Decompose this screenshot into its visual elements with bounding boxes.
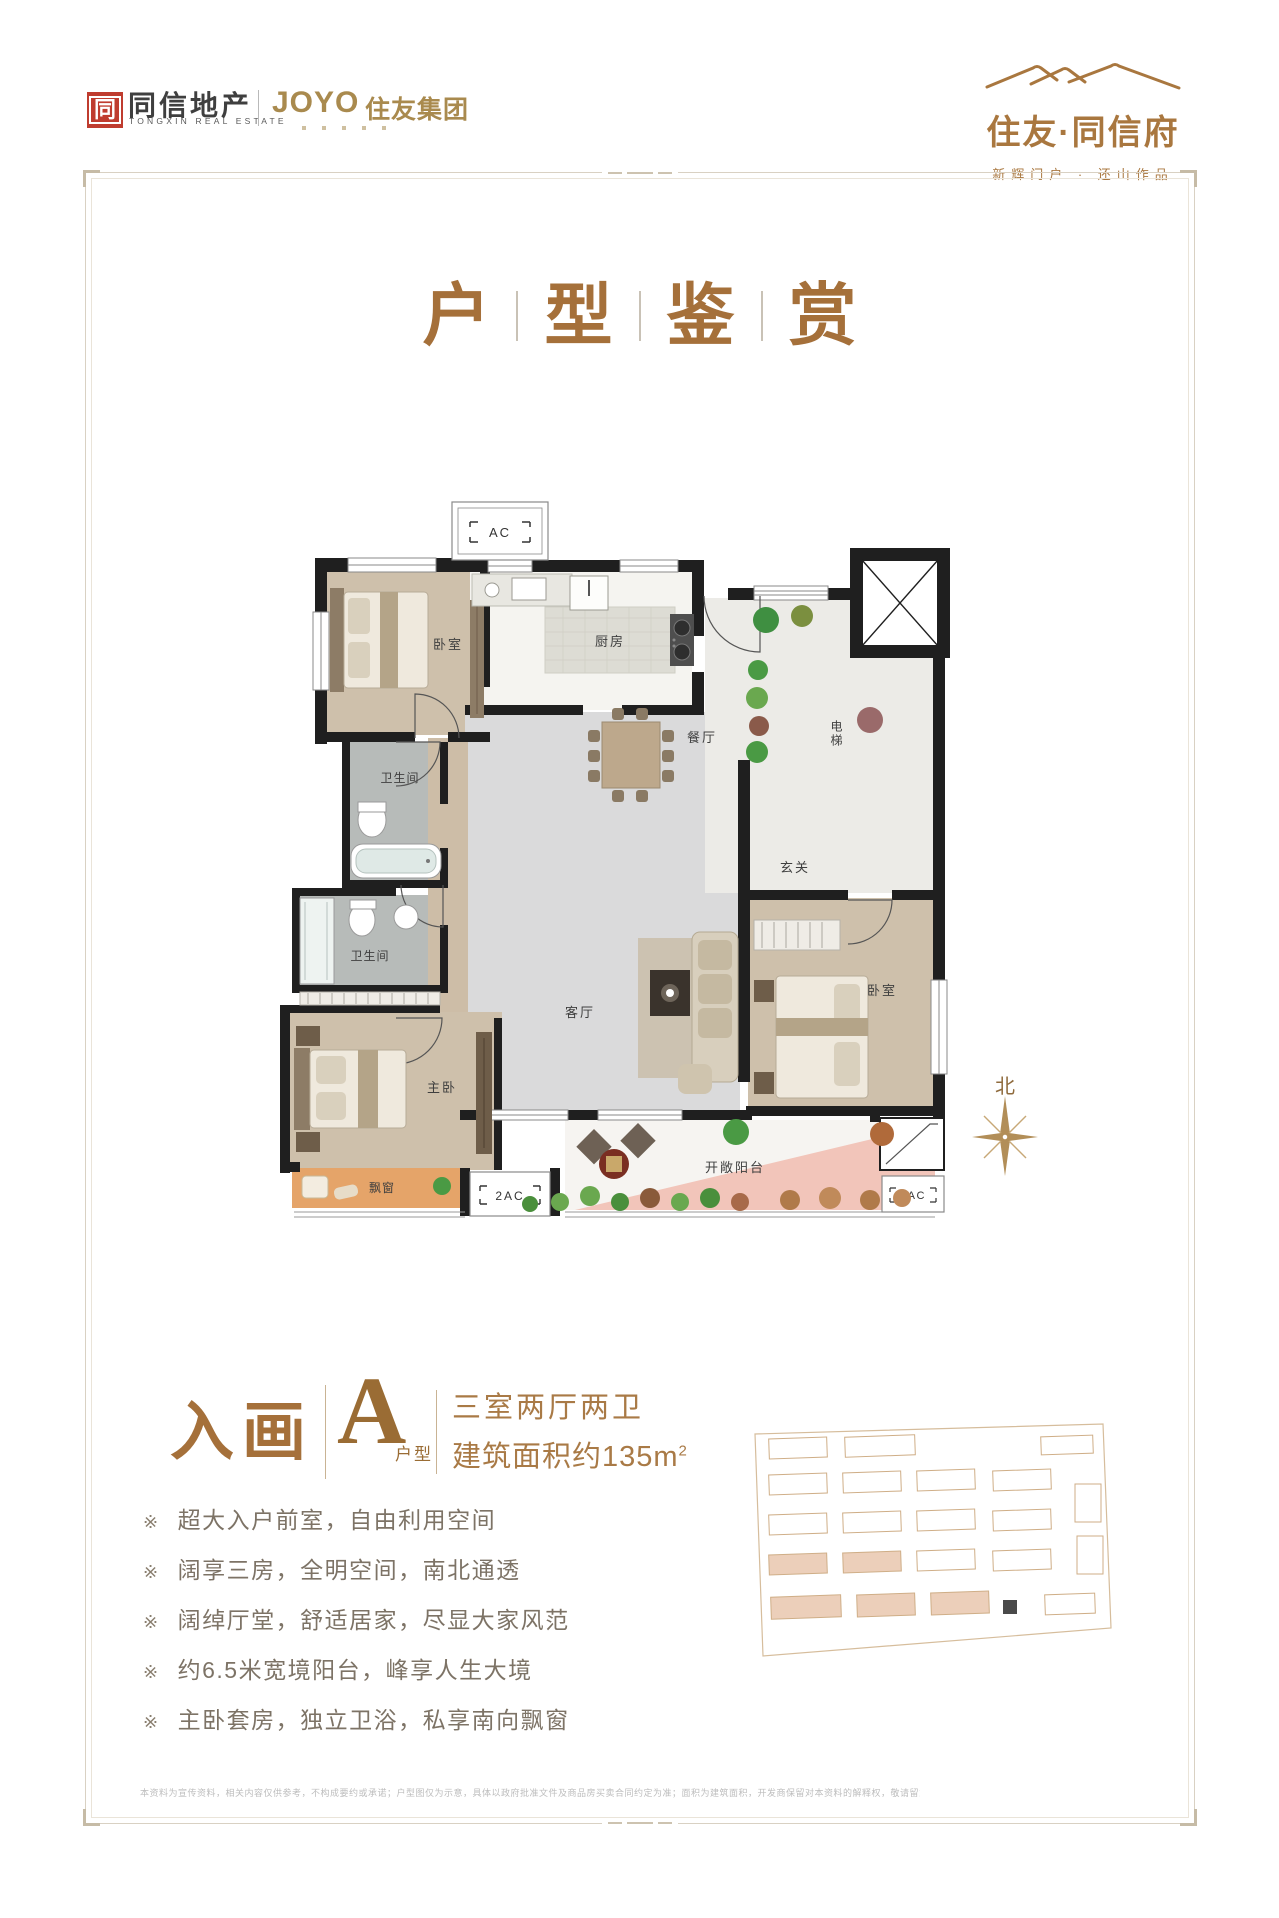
project-brand: 住友·同信府 新辉门户 · 还山作品 [973,60,1193,183]
info-divider [436,1390,437,1474]
title-char-3: 鉴 [667,282,735,350]
site-plan [745,1418,1120,1668]
label-living: 客厅 [565,1005,595,1020]
label-bath2: 卫生间 [350,949,389,963]
info-divider [325,1385,326,1479]
project-name: 住友·同信府 [973,105,1193,154]
ac-box-left: 2AC [470,1172,550,1216]
title-char-4: 赏 [789,282,857,350]
title-separator [516,291,518,341]
label-elevator: 电梯 [829,720,843,748]
label-dining: 餐厅 [687,730,717,745]
ac-top-label: AC [489,525,511,540]
unit-specs: 三室两厅两卫 建筑面积约135m2 [452,1384,688,1475]
floor-plan: AC 2AC 2AC [230,420,950,1270]
site-landmark [1003,1600,1017,1614]
site-buildings-outline [769,1435,1103,1615]
ac-box-right: 2AC [882,1176,944,1212]
unit-letter-label: 户型 [395,1440,433,1465]
feature-marker: ※ [143,1712,160,1732]
ac-box-top: AC [452,502,548,560]
tongxin-logo-glyph: 同 [89,96,121,124]
feature-item: ※阔享三房，全明空间，南北通透 [143,1546,570,1596]
label-balcony: 开敞阳台 [705,1160,765,1175]
feature-item: ※超大入户前室，自由利用空间 [143,1496,570,1546]
label-bay-window: 飘窗 [369,1181,395,1195]
label-foyer: 玄关 [780,860,810,875]
unit-rooms-spec: 三室两厅两卫 [452,1384,688,1426]
label-kitchen: 厨房 [595,634,625,649]
disclaimer: 本资料为宣传资料，相关内容仅供参考，不构成要约或承诺；户型图仅为示意，具体以政府… [140,1786,920,1799]
unit-series-name: 入画 [170,1381,314,1473]
feature-item: ※约6.5米宽境阳台，峰享人生大境 [143,1646,570,1696]
title-char-2: 型 [544,282,612,350]
balcony-railing [294,1212,935,1217]
logo-divider [258,90,259,126]
feature-item: ※阔绰厅堂，舒适居家，尽显大家风范 [143,1596,570,1646]
ac-left-label: 2AC [495,1189,524,1203]
feature-marker: ※ [143,1662,160,1682]
label-bedroom-tl: 卧室 [433,637,463,652]
label-master: 主卧 [427,1080,457,1095]
feature-list: ※超大入户前室，自由利用空间 ※阔享三房，全明空间，南北通透 ※阔绰厅堂，舒适居… [143,1496,570,1746]
feature-marker: ※ [143,1562,160,1582]
label-bedroom-r: 卧室 [867,983,897,998]
label-bath1: 卫生间 [380,771,419,785]
unit-area-spec: 建筑面积约135m2 [452,1433,688,1475]
joyo-logo-sub-dots [302,126,386,130]
feature-marker: ※ [143,1512,160,1532]
feature-marker: ※ [143,1612,160,1632]
tongxin-logo-name-en: TONGXIN REAL ESTATE [129,116,287,126]
elevator-shaft [850,548,950,658]
page-title: 户 型 鉴 赏 [0,282,1279,350]
title-char-1: 户 [422,282,490,350]
tongxin-logo-mark: 同 [87,92,123,128]
title-separator [639,291,641,341]
mountain-icon [973,60,1193,94]
joyo-logo-name: 住友集团 [365,90,469,126]
living-room-furniture [638,932,738,1094]
north-label: 北 [995,1070,1016,1099]
feature-item: ※主卧套房，独立卫浴，私享南向飘窗 [143,1696,570,1746]
title-separator [761,291,763,341]
compass-icon [970,1096,1040,1176]
joyo-logo: JOYO [272,86,359,120]
